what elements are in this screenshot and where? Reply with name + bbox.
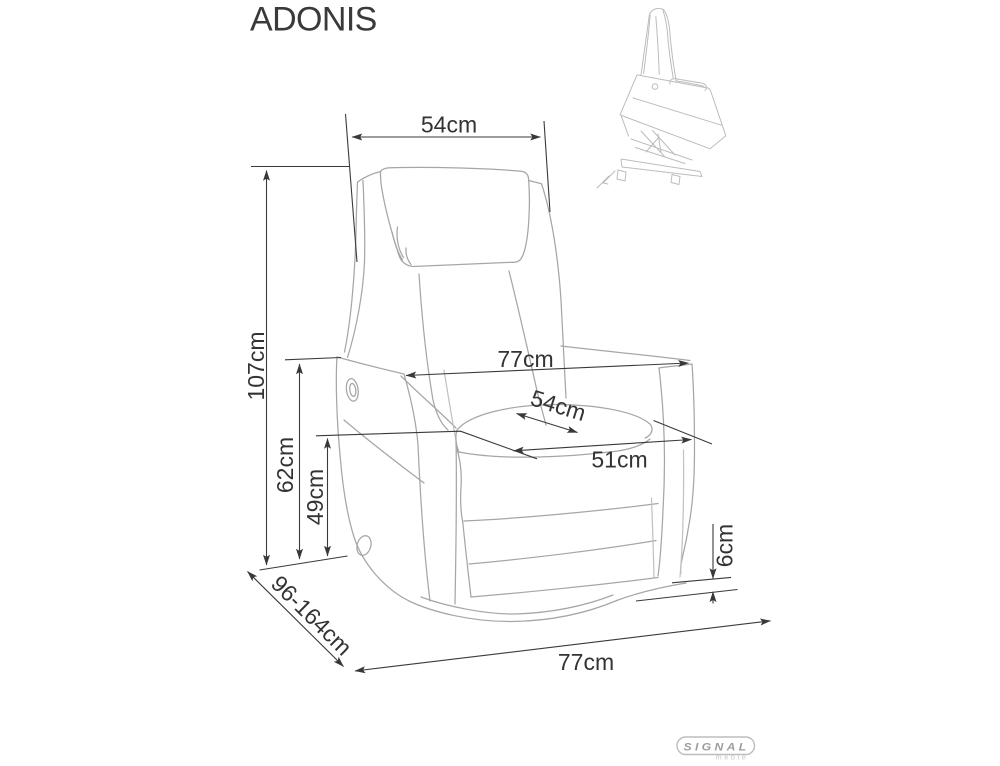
svg-text:SIGNAL: SIGNAL [684, 742, 750, 754]
svg-text:49cm: 49cm [302, 469, 328, 525]
svg-text:107cm: 107cm [243, 331, 269, 400]
svg-text:77cm: 77cm [558, 649, 614, 675]
svg-text:meble: meble [716, 755, 749, 762]
svg-text:62cm: 62cm [272, 437, 298, 493]
svg-text:ADONIS: ADONIS [250, 1, 377, 39]
svg-text:51cm: 51cm [591, 447, 647, 473]
svg-text:96-164cm: 96-164cm [266, 570, 357, 660]
svg-text:54cm: 54cm [421, 112, 477, 138]
svg-text:6cm: 6cm [712, 524, 738, 567]
svg-text:77cm: 77cm [497, 346, 553, 372]
